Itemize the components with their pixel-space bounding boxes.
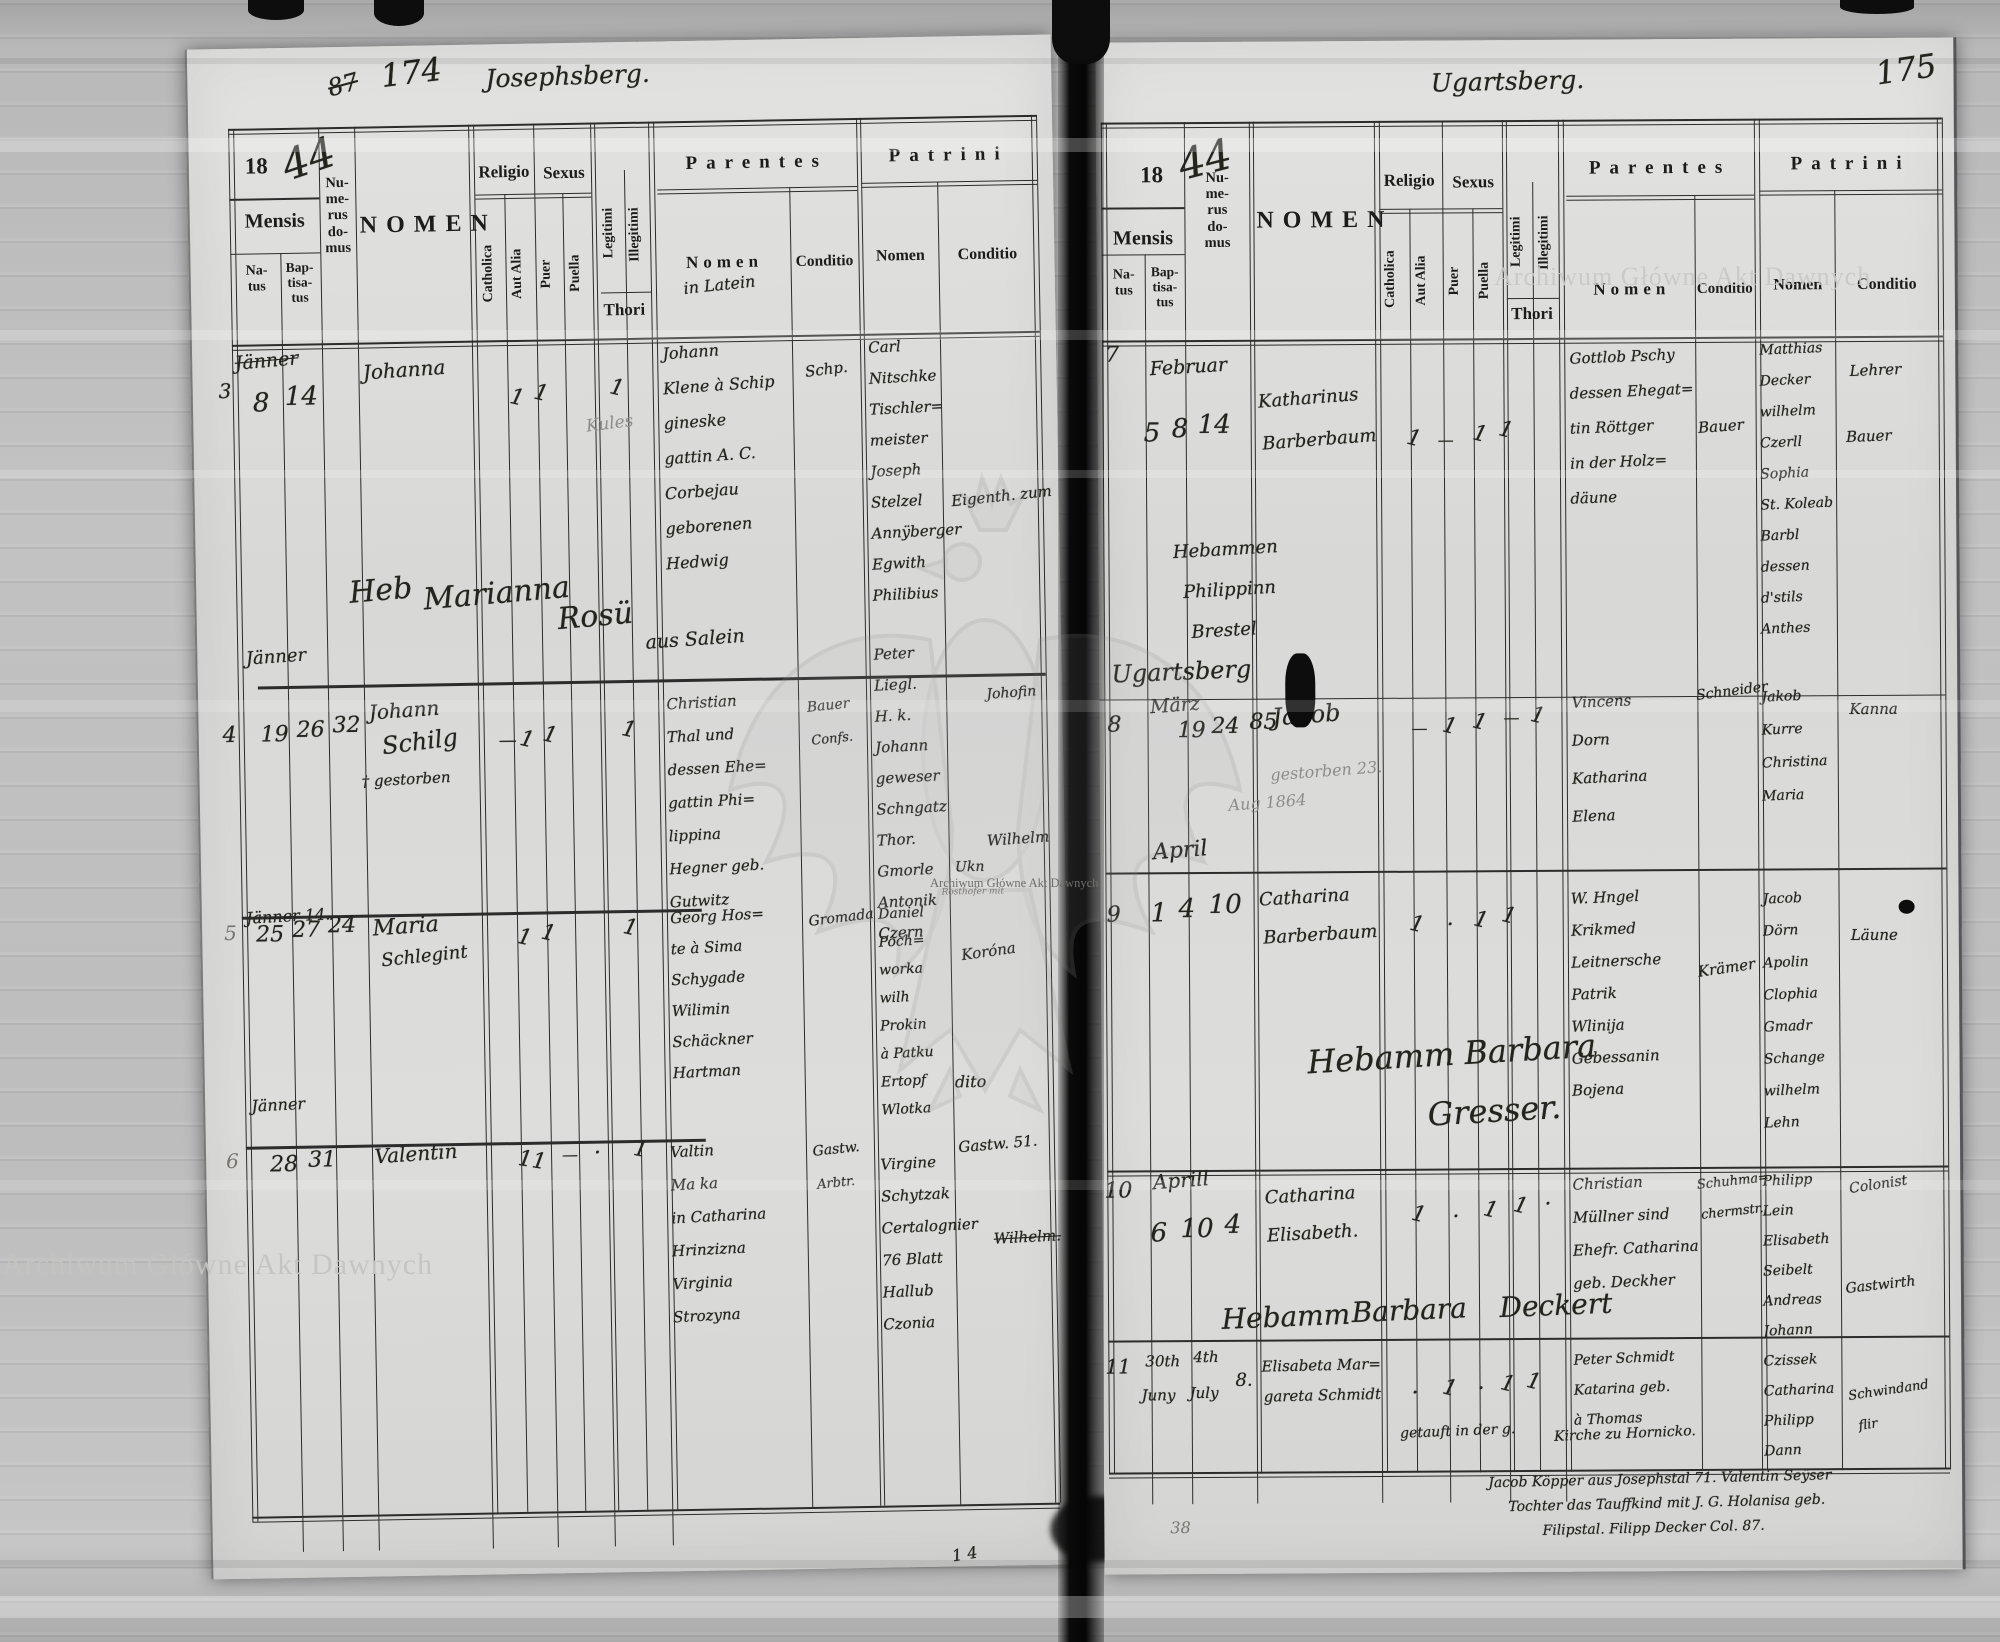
handwriting-text: Virginia xyxy=(672,1274,733,1292)
handwriting-text: Johanna xyxy=(362,357,446,383)
handwriting-text: Kirche zu Hornicko. xyxy=(1554,1424,1696,1444)
handwriting-text: Bojena xyxy=(1572,1082,1625,1099)
handwriting-text: Jänner xyxy=(251,1096,305,1115)
handwriting-text: däune xyxy=(1570,490,1617,507)
handwriting-text: Valentin xyxy=(374,1141,458,1167)
handwriting-text: gattin A. C. xyxy=(664,445,757,467)
col-nomen: NOMEN xyxy=(1256,207,1372,235)
handwriting-text: Schange xyxy=(1764,1050,1826,1066)
handwriting-text: Februar xyxy=(1149,356,1227,379)
handwriting-text: Catharina xyxy=(1764,1382,1835,1399)
handwriting-text: Lehn xyxy=(1764,1115,1800,1130)
handwriting-text: Nitschke xyxy=(868,368,936,387)
col-patrini: Patrini xyxy=(860,143,1036,167)
handwriting-text: Christina xyxy=(1762,754,1828,771)
handwriting-text: Strozyna xyxy=(673,1307,741,1326)
scanned-register-page: 18 Mensis Na- tus Bap- tisa- tus Nu- me-… xyxy=(0,0,2000,1642)
handwriting-text: 1 xyxy=(632,1138,650,1162)
handwriting-text: Dann xyxy=(1764,1443,1802,1459)
handwriting-text: Jakob xyxy=(1761,689,1801,705)
handwriting-text: 7 xyxy=(1105,345,1119,367)
col-patrini-conditio: Conditio xyxy=(940,245,1034,265)
handwriting-text: Lein xyxy=(1762,1203,1794,1218)
col-thori: Thori xyxy=(1505,304,1559,323)
col-natus: Na- tus xyxy=(234,263,279,295)
handwriting-text: in der Holz= xyxy=(1570,453,1668,472)
handwriting-text: Kules xyxy=(585,413,634,436)
handwriting-text: Gresser. xyxy=(1427,1091,1562,1131)
handwriting-text: Barberbaum xyxy=(1262,427,1377,454)
handwriting-text: flir xyxy=(1858,1417,1879,1433)
handwriting-text: Kurre xyxy=(1762,722,1803,738)
handwriting-text: Czissek xyxy=(1763,1352,1817,1368)
ink-blob xyxy=(1899,900,1915,914)
handwriting-text: 14 xyxy=(285,383,319,410)
handwriting-text: Barbl xyxy=(1760,528,1799,544)
handwriting-text: 1 xyxy=(1407,913,1426,938)
handwriting-text: 1 xyxy=(1496,418,1515,443)
handwriting-text: Hallub xyxy=(882,1283,934,1301)
col-parentes-conditio: Conditio xyxy=(1695,281,1755,298)
handwriting-text: Gastwirth xyxy=(1845,1274,1916,1296)
ink-blob xyxy=(1285,653,1315,727)
handwriting-text: Leitnersche xyxy=(1571,952,1662,971)
handwriting-text: 1 xyxy=(518,728,537,753)
handwriting-text: Apolin xyxy=(1763,955,1809,971)
handwriting-text: Lehrer xyxy=(1849,362,1901,379)
ink-blob xyxy=(1840,0,1914,14)
handwriting-text: Maria xyxy=(372,914,440,941)
handwriting-text: Ugartsberg. xyxy=(1431,67,1585,96)
col-legitimi: Legitimi xyxy=(600,177,618,289)
handwriting-text: Gottlob Pschy xyxy=(1569,347,1675,366)
handwriting-text: · xyxy=(1412,1383,1419,1405)
col-legitimi: Legitimi xyxy=(1508,188,1524,296)
handwriting-text: Czonia xyxy=(883,1315,936,1333)
handwriting-text: Anthes xyxy=(1761,621,1811,637)
handwriting-text: 5 xyxy=(224,923,237,943)
eagle-emblem-watermark xyxy=(700,470,1260,1130)
handwriting-text: 4th xyxy=(1193,1350,1218,1365)
handwriting-text: 31 xyxy=(308,1149,336,1171)
handwriting-text: wilhelm xyxy=(1764,1082,1821,1098)
ink-blob xyxy=(248,0,304,20)
handwriting-text: Johann xyxy=(1763,1323,1813,1339)
col-catholica: Catholica xyxy=(1382,219,1398,339)
handwriting-text: 44 xyxy=(1174,133,1236,187)
handwriting-text: Jänner xyxy=(245,646,306,668)
handwriting-text: Aprill xyxy=(1152,1168,1209,1192)
handwriting-text: Ehefr. Catharina xyxy=(1573,1239,1699,1259)
handwriting-text: Elena xyxy=(1572,808,1616,825)
handwriting-text: 76 Blatt xyxy=(882,1251,943,1269)
handwriting-text: Jacob xyxy=(1763,891,1803,907)
col-sexus: Sexus xyxy=(1444,172,1502,191)
handwriting-text: 1 xyxy=(539,922,558,947)
handwriting-text: 8 xyxy=(253,390,270,416)
col-parentes-nomen: Nomen xyxy=(1569,279,1695,299)
handwriting-text: 4 xyxy=(223,725,237,747)
handwriting-text: Clophia xyxy=(1763,986,1818,1002)
handwriting-text: 1 xyxy=(1409,1203,1428,1228)
handwriting-text: Patrik xyxy=(1571,986,1617,1003)
handwriting-text: 8. xyxy=(1235,1372,1252,1390)
handwriting-text: Czerll xyxy=(1760,435,1803,451)
col-aut-alia: Aut Alia xyxy=(509,212,527,336)
col-mensis: Mensis xyxy=(230,209,320,233)
handwriting-text: 3 xyxy=(219,381,232,401)
handwriting-text: Wilhelm. xyxy=(993,1228,1061,1246)
handwriting-text: 11 xyxy=(516,1148,547,1174)
year-printed: 18 xyxy=(1140,162,1163,188)
handwriting-text: 1 xyxy=(532,382,551,407)
handwriting-text: Colonist xyxy=(1848,1174,1908,1196)
col-religio: Religio xyxy=(1377,171,1441,190)
handwriting-text: meister xyxy=(870,431,928,449)
col-parentes: Parentes xyxy=(1566,157,1754,179)
handwriting-text: · xyxy=(1544,1194,1551,1216)
handwriting-text: Heb xyxy=(348,573,413,608)
col-baptisatus: Bap- tisa- tus xyxy=(280,259,319,305)
handwriting-text: — xyxy=(562,1147,578,1163)
handwriting-text: d'stils xyxy=(1761,590,1803,606)
handwriting-text: 8 xyxy=(1172,416,1189,442)
handwriting-text: 25 xyxy=(256,924,284,946)
handwriting-text: † gestorben xyxy=(361,770,450,790)
handwriting-text: 1 xyxy=(1440,1377,1459,1402)
handwriting-text: — xyxy=(1411,721,1427,737)
handwriting-text: 87 xyxy=(325,69,361,100)
handwriting-text: · xyxy=(1477,1378,1484,1400)
handwriting-text: Bauer xyxy=(1846,428,1892,445)
handwriting-text: 6 xyxy=(1151,1220,1168,1246)
handwriting-text: Dorn xyxy=(1572,732,1610,749)
handwriting-text: Virgine xyxy=(880,1155,936,1173)
handwriting-text: Catharina xyxy=(1259,886,1351,909)
handwriting-text: Ma ka xyxy=(670,1176,718,1193)
handwriting-text: Klene à Schip xyxy=(663,374,775,398)
handwriting-text: Barbara xyxy=(1351,1294,1467,1327)
col-puella: Puella xyxy=(567,213,585,333)
handwriting-text: Sophia xyxy=(1760,466,1809,482)
col-catholica: Catholica xyxy=(480,209,498,337)
handwriting-text: Bauer xyxy=(1698,418,1745,436)
handwriting-text: Hebamm xyxy=(1221,1301,1351,1334)
handwriting-text: Hrinzizna xyxy=(672,1240,747,1259)
handwriting-text: Johann xyxy=(368,698,440,723)
col-thori: Thori xyxy=(597,300,651,320)
handwriting-text: Carl xyxy=(868,339,901,356)
handwriting-text: wilhelm xyxy=(1760,403,1817,419)
handwriting-text: 30th xyxy=(1145,1354,1180,1369)
handwriting-text: in Latein xyxy=(683,273,756,296)
handwriting-text: St. Koleab xyxy=(1760,496,1833,513)
handwriting-text: Marianna xyxy=(422,573,571,616)
handwriting-text: Christian xyxy=(1572,1175,1643,1193)
col-patrini-nomen: Nomen xyxy=(864,247,936,266)
handwriting-text: Andreas xyxy=(1763,1292,1822,1308)
handwriting-text: 4 xyxy=(1224,1212,1241,1238)
handwriting-text: · xyxy=(1447,914,1454,936)
handwriting-text: Barberbaum xyxy=(1263,923,1378,948)
handwriting-text: 1 xyxy=(1471,908,1490,933)
handwriting-text: Certalognier xyxy=(881,1217,978,1237)
handwriting-text: Seibelt xyxy=(1763,1263,1813,1279)
col-sexus: Sexus xyxy=(535,163,593,183)
handwriting-text: Krikmed xyxy=(1571,921,1637,939)
handwriting-text: Jänner xyxy=(234,349,299,373)
handwriting-text: 175 xyxy=(1873,49,1938,90)
handwriting-text: Tischler= xyxy=(869,399,944,418)
handwriting-text: Valtin xyxy=(670,1143,714,1160)
col-aut-alia: Aut Alia xyxy=(1413,223,1429,339)
col-parentes-nomen: Nomen xyxy=(660,251,788,272)
col-patrini-conditio: Conditio xyxy=(1837,276,1937,295)
handwriting-text: gareta Schmidt xyxy=(1264,1387,1382,1405)
handwriting-text: chermstr. xyxy=(1700,1202,1764,1222)
handwriting-text: Vincens xyxy=(1571,693,1631,710)
handwriting-text: 19 xyxy=(261,724,289,746)
handwriting-text: · xyxy=(1452,1206,1459,1228)
year-printed: 18 xyxy=(245,153,268,179)
handwriting-text: gestorben 23. xyxy=(1270,759,1383,783)
handwriting-text: Arbtr. xyxy=(817,1175,856,1192)
handwriting-text: Schuhma= xyxy=(1696,1171,1769,1192)
handwriting-text: dessen Ehegat= xyxy=(1569,382,1693,402)
handwriting-text: 1 xyxy=(508,386,527,411)
handwriting-text: in Catharina xyxy=(671,1206,767,1226)
handwriting-text: Gmadr xyxy=(1763,1019,1812,1035)
handwriting-text: tin Röttger xyxy=(1570,418,1654,436)
col-illegitimi: Illegitimi xyxy=(626,180,644,290)
handwriting-text: Schilg xyxy=(381,725,459,758)
col-religio: Religio xyxy=(473,162,535,182)
handwriting-text: 1 xyxy=(1440,715,1459,740)
handwriting-text: 1 xyxy=(1404,427,1423,452)
handwriting-text: Gastw. 51. xyxy=(958,1133,1038,1155)
handwriting-text: Rosü xyxy=(556,599,634,635)
handwriting-text: — xyxy=(1503,710,1519,726)
handwriting-text: Peter Schmidt xyxy=(1573,1350,1674,1368)
handwriting-text: 5 xyxy=(1144,420,1161,446)
handwriting-text: — xyxy=(1438,432,1454,448)
handwriting-text: 24 xyxy=(328,915,356,937)
ink-blob xyxy=(374,0,424,26)
ink-blob xyxy=(1052,0,1110,64)
col-mensis: Mensis xyxy=(1101,227,1184,250)
handwriting-text: Dörn xyxy=(1763,923,1799,938)
col-nomen: NOMEN xyxy=(360,211,470,240)
handwriting-text: Juny xyxy=(1142,1388,1176,1403)
handwriting-text: Deckert xyxy=(1499,1290,1613,1323)
handwriting-text: Schlegint xyxy=(380,943,468,970)
handwriting-text: Schytzak xyxy=(881,1186,950,1205)
handwriting-text: Elisabeth xyxy=(1763,1232,1830,1249)
handwriting-text: Josephsberg. xyxy=(485,61,650,92)
handwriting-text: getauft in der g. xyxy=(1400,1422,1516,1441)
col-baptisatus: Bap- tisa- tus xyxy=(1145,264,1185,310)
handwriting-text: 28 xyxy=(270,1154,298,1176)
handwriting-text: W. Hngel xyxy=(1571,889,1640,907)
handwriting-text: Elisabeta Mar= xyxy=(1261,1357,1381,1375)
col-parentes: Parentes xyxy=(657,150,857,175)
col-patrini-nomen: Nomen xyxy=(1763,276,1833,294)
col-puella: Puella xyxy=(1476,224,1492,336)
handwriting-text: gineske xyxy=(663,412,726,432)
handwriting-text: · xyxy=(594,1143,601,1165)
handwriting-text: Philipp xyxy=(1764,1413,1814,1429)
handwriting-text: 14 xyxy=(1198,412,1231,438)
handwriting-text: 11 xyxy=(1105,1356,1131,1376)
handwriting-text: Schp. xyxy=(804,360,848,380)
col-natus: Na- tus xyxy=(1103,267,1145,299)
handwriting-text: Tochter das Tauffkind mit J. G. Holanisa… xyxy=(1508,1493,1825,1514)
handwriting-text: Krämer xyxy=(1697,957,1756,980)
handwriting-text: Müllner sind xyxy=(1572,1207,1669,1226)
handwriting-text: 6 xyxy=(226,1151,239,1171)
handwriting-text: Filipstal. Filipp Decker Col. 87. xyxy=(1542,1519,1764,1538)
col-puer: Puer xyxy=(538,215,556,333)
handwriting-text: 10 xyxy=(1180,1216,1213,1242)
handwriting-text: 1 xyxy=(1470,710,1489,735)
handwriting-text: Katharinus xyxy=(1257,386,1359,412)
handwriting-text: July xyxy=(1190,1386,1219,1401)
handwriting-text: 10 xyxy=(1104,1180,1132,1202)
col-numerus-domus: Nu- me- rus do- mus xyxy=(319,175,356,257)
handwriting-text: 1 xyxy=(619,718,638,743)
col-patrini: Patrini xyxy=(1759,152,1942,174)
handwriting-text: 26 xyxy=(296,719,324,741)
handwriting-text: Johann xyxy=(662,342,719,362)
handwriting-text: Elisabeth. xyxy=(1267,1222,1359,1245)
handwriting-text: — xyxy=(499,732,517,750)
handwriting-text: Philipp xyxy=(1762,1173,1812,1189)
handwriting-text: Kanna xyxy=(1849,702,1898,717)
handwriting-text: 27 xyxy=(292,919,320,941)
handwriting-text: Gastw. xyxy=(812,1140,860,1159)
handwriting-text: 1 xyxy=(1528,704,1547,729)
handwriting-text: Catharina xyxy=(1264,1184,1356,1207)
handwriting-text: Katarina geb. xyxy=(1574,1380,1671,1398)
handwriting-text: Matthias xyxy=(1759,341,1822,358)
handwriting-text: Maria xyxy=(1762,788,1805,804)
col-parentes-conditio: Conditio xyxy=(790,252,858,271)
col-puer: Puer xyxy=(1446,226,1462,336)
handwriting-text: 1 xyxy=(608,376,627,401)
handwriting-text: Decker xyxy=(1759,373,1810,389)
handwriting-text: 1 xyxy=(1511,1194,1530,1219)
handwriting-text: 1 4 xyxy=(951,1545,979,1565)
handwriting-text: Katharina xyxy=(1572,769,1648,787)
handwriting-text: 38 xyxy=(1170,1520,1190,1536)
handwriting-text: 1 xyxy=(1499,904,1518,929)
handwriting-text: 32 xyxy=(332,715,360,737)
handwriting-text: 1 xyxy=(1481,1198,1500,1223)
handwriting-text: 174 xyxy=(379,53,444,92)
handwriting-text: dessen xyxy=(1761,559,1810,575)
handwriting-text: Hebamm Barbara xyxy=(1306,1029,1596,1078)
handwriting-text: Läune xyxy=(1851,928,1898,943)
col-illegitimi: Illegitimi xyxy=(1536,190,1552,296)
handwriting-text: Schwindand xyxy=(1848,1378,1930,1403)
